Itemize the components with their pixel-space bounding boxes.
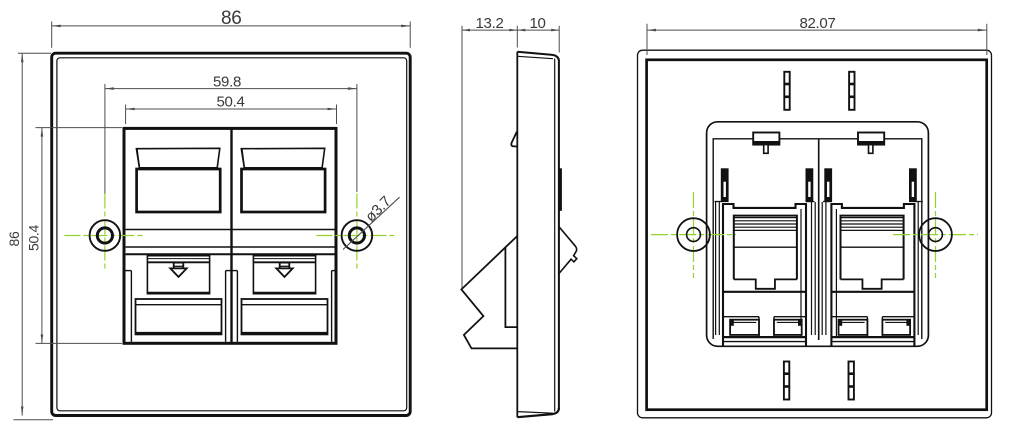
svg-text:10: 10 bbox=[529, 15, 545, 32]
svg-text:86: 86 bbox=[6, 231, 22, 246]
svg-text:13.2: 13.2 bbox=[476, 15, 504, 32]
svg-text:82.07: 82.07 bbox=[799, 15, 835, 32]
svg-text:59.8: 59.8 bbox=[213, 73, 241, 90]
svg-text:50.4: 50.4 bbox=[217, 94, 245, 111]
svg-text:50.4: 50.4 bbox=[26, 224, 42, 251]
svg-text:86: 86 bbox=[221, 8, 242, 29]
